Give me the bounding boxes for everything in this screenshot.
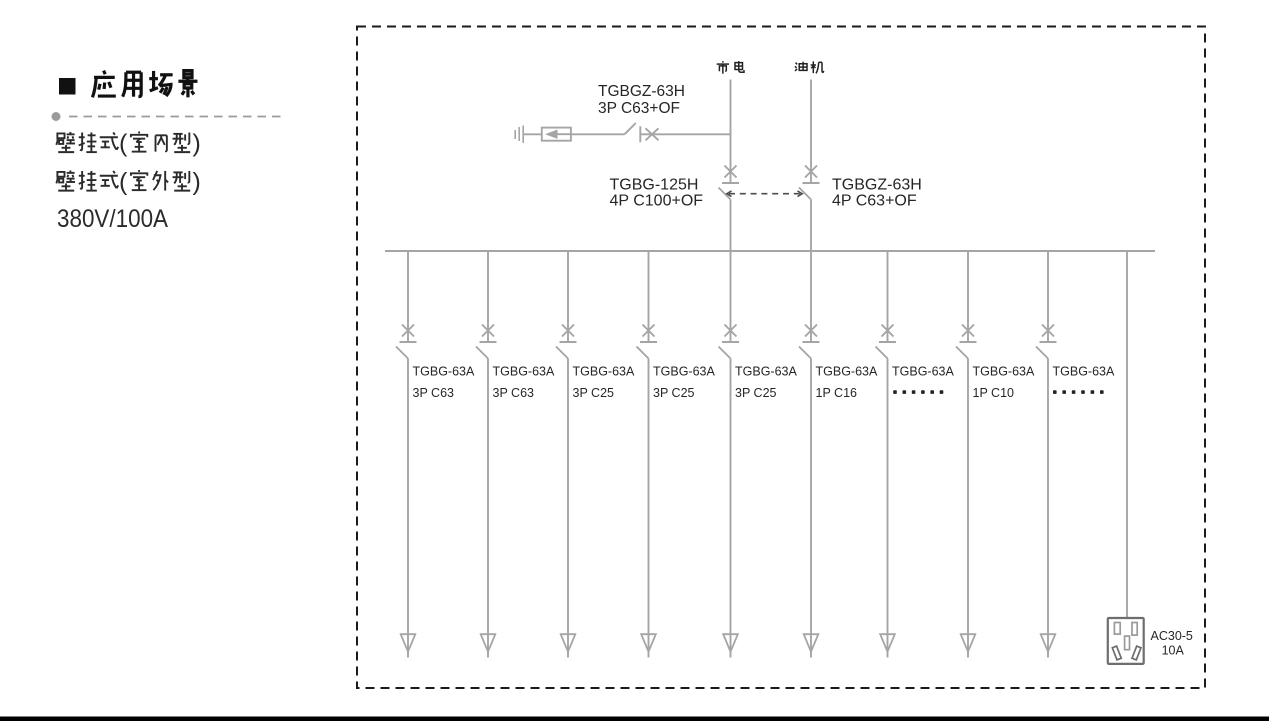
svg-text:TGBGZ-63H: TGBGZ-63H (598, 83, 685, 100)
svg-text:3P C25: 3P C25 (653, 386, 695, 400)
svg-text:TGBG-63A: TGBG-63A (735, 365, 797, 379)
svg-text:4P C63+OF: 4P C63+OF (832, 193, 917, 210)
svg-text:TGBG-63A: TGBG-63A (1053, 365, 1115, 379)
svg-text:TGBG-63A: TGBG-63A (816, 365, 878, 379)
svg-text:TGBGZ-63H: TGBGZ-63H (832, 177, 922, 194)
svg-text:TGBG-63A: TGBG-63A (892, 365, 954, 379)
svg-text:(: ( (119, 130, 128, 158)
svg-text:3P C25: 3P C25 (735, 386, 777, 400)
svg-text:3P C63: 3P C63 (493, 386, 535, 400)
svg-text:TGBG-63A: TGBG-63A (493, 365, 555, 379)
svg-text:3P C63+OF: 3P C63+OF (598, 100, 680, 117)
svg-text:TGBG-63A: TGBG-63A (653, 365, 715, 379)
svg-text:TGBG-125H: TGBG-125H (610, 177, 699, 194)
svg-text:380V/100A: 380V/100A (57, 205, 168, 233)
svg-text:4P C100+OF: 4P C100+OF (610, 193, 704, 210)
svg-text:AC30-5: AC30-5 (1151, 629, 1193, 643)
svg-text:3P C25: 3P C25 (573, 386, 615, 400)
svg-text:TGBG-63A: TGBG-63A (573, 365, 635, 379)
svg-text:1P C10: 1P C10 (973, 386, 1015, 400)
svg-text:): ) (193, 130, 201, 158)
svg-text:3P C63: 3P C63 (413, 386, 455, 400)
svg-text:1P C16: 1P C16 (816, 386, 858, 400)
svg-text:10A: 10A (1162, 644, 1185, 658)
svg-text:(: ( (119, 168, 128, 196)
svg-text:): ) (193, 168, 201, 196)
svg-text:TGBG-63A: TGBG-63A (413, 365, 475, 379)
svg-text:TGBG-63A: TGBG-63A (973, 365, 1035, 379)
